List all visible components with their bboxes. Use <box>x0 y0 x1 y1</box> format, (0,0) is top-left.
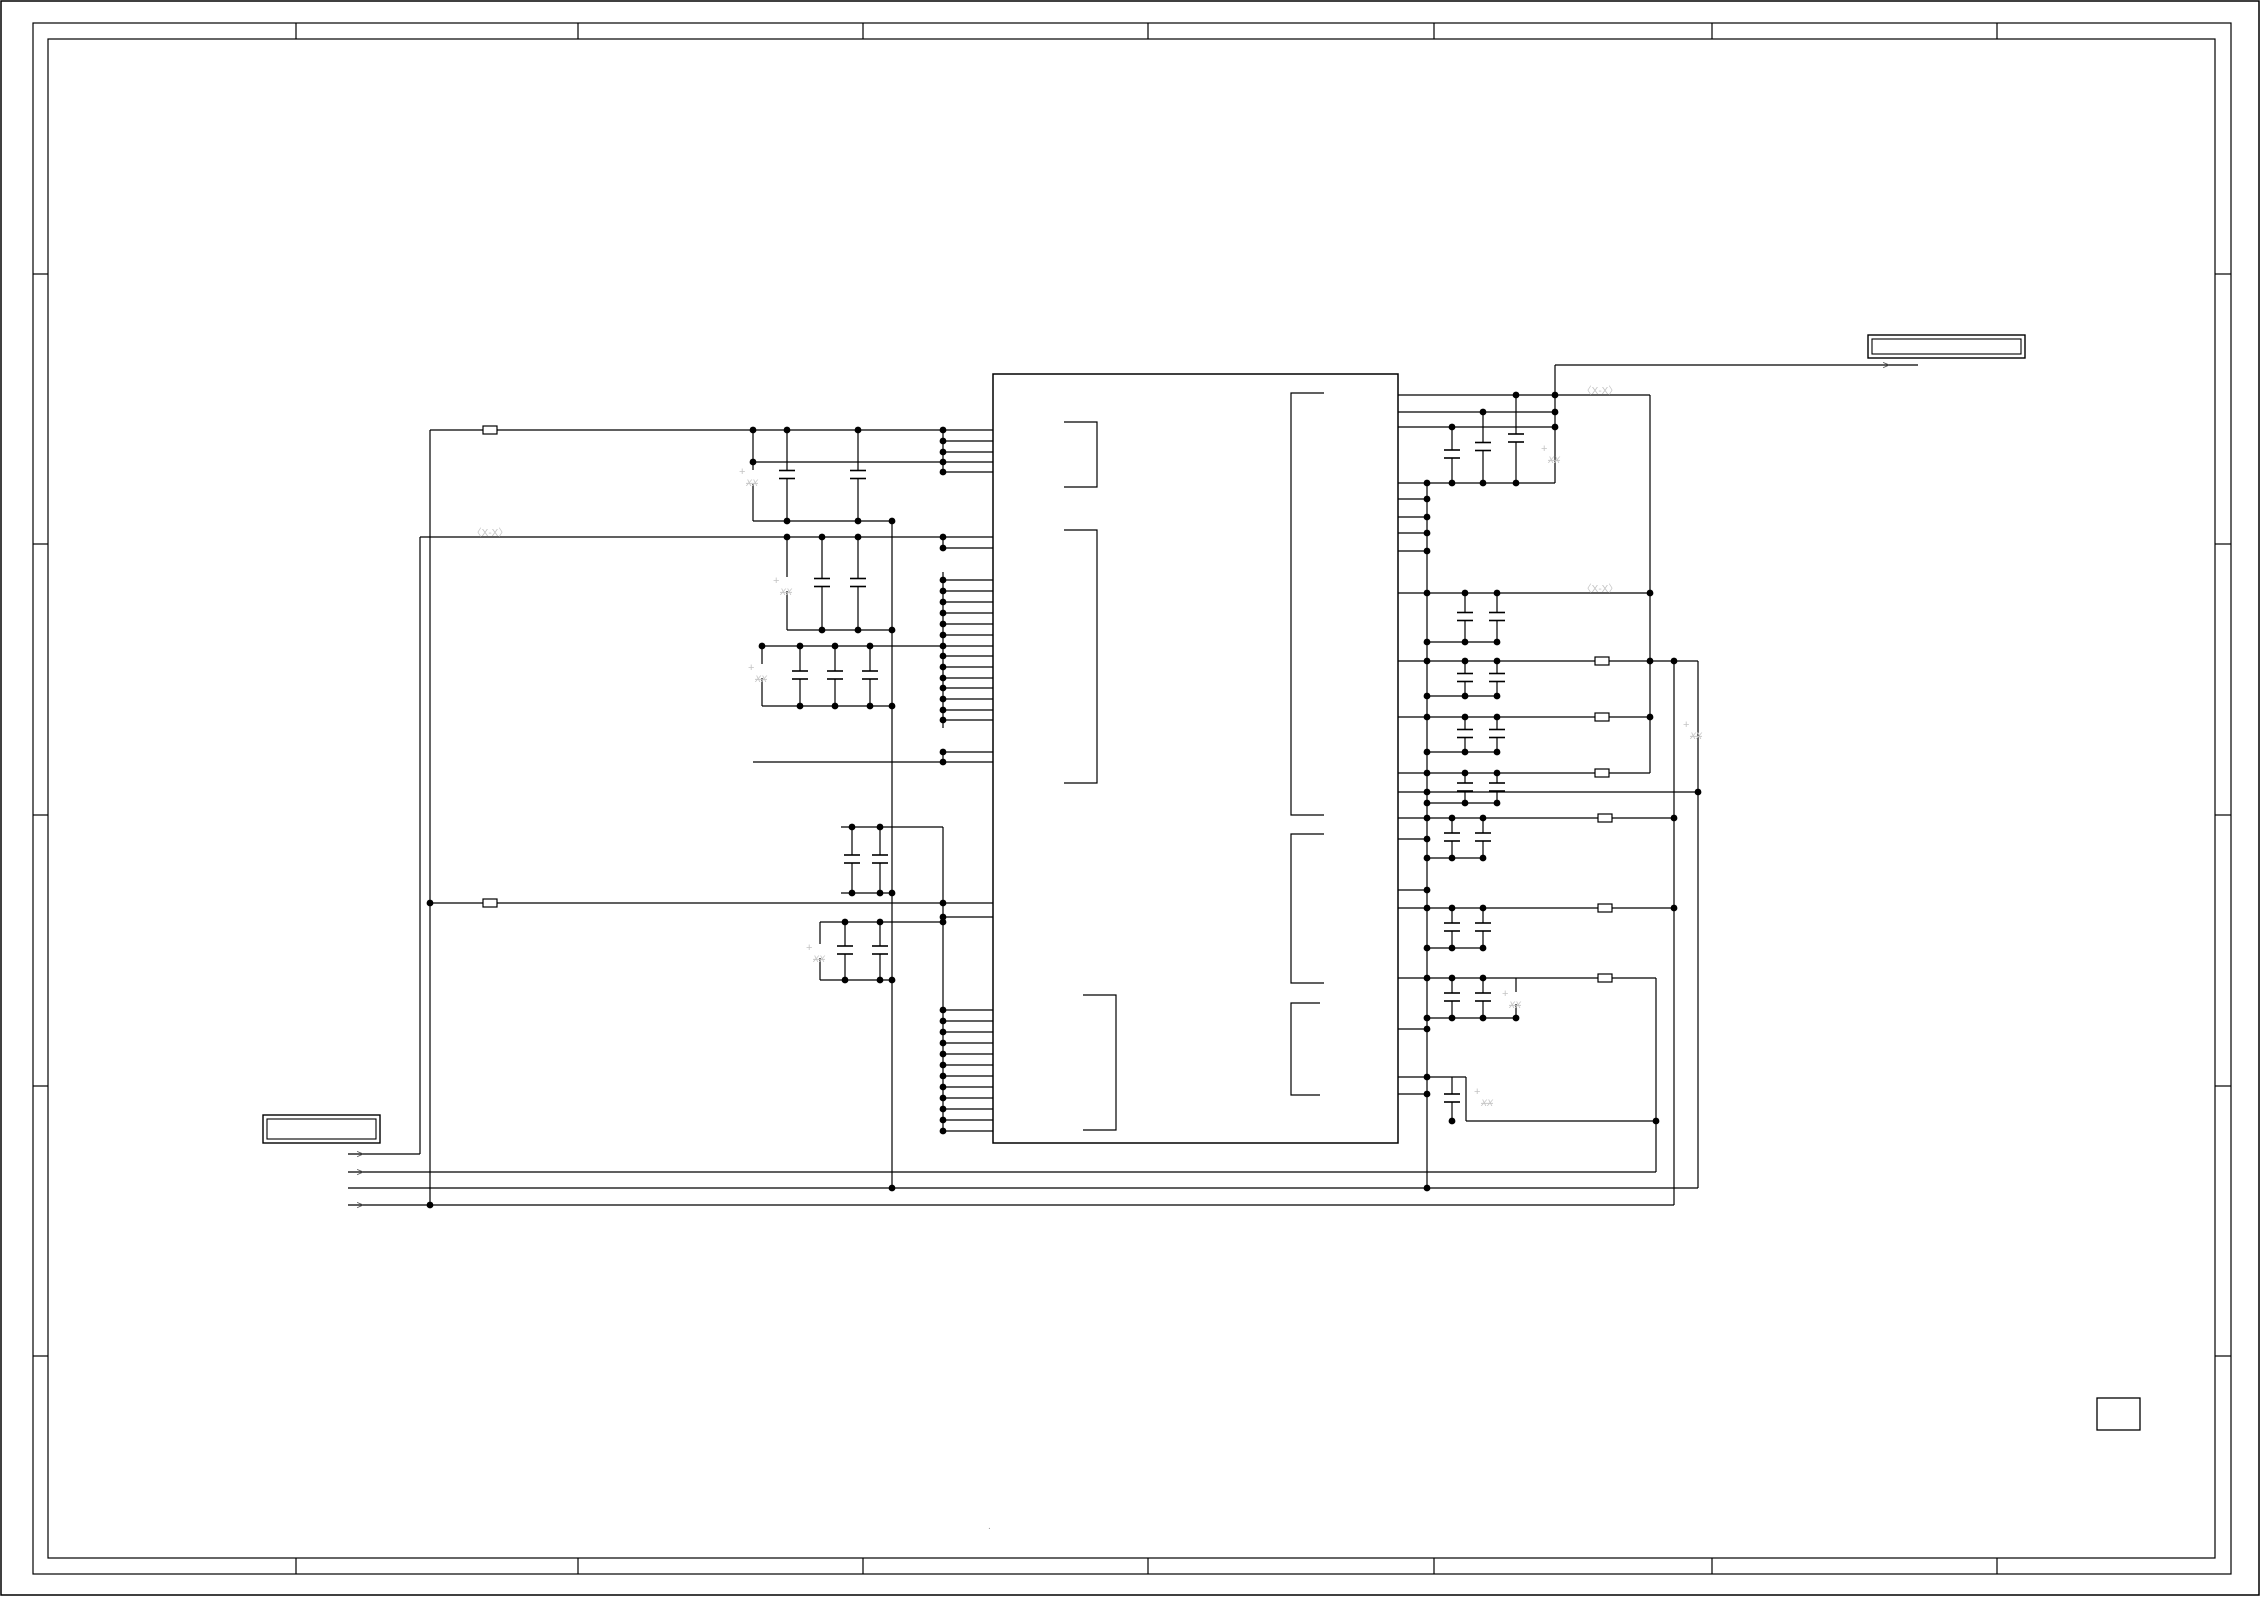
junction-dot <box>940 1018 947 1025</box>
junction-dot <box>1424 905 1431 912</box>
junction-dot <box>1671 905 1678 912</box>
junction-dot <box>889 518 896 525</box>
junction-dot <box>940 1073 947 1080</box>
junction-dot <box>877 824 884 831</box>
junction-dot <box>750 427 757 434</box>
junction-dot <box>1462 800 1469 807</box>
junction-dot <box>940 900 947 907</box>
junction-dot <box>1424 887 1431 894</box>
junction-dot <box>1424 530 1431 537</box>
ghost-cap-value: +XX <box>1683 719 1703 741</box>
schematic-sheet: +XX+XX+XX+XX+XX+XX+XX+XX〈X-X〉〈X-X〉〈X-X〉>… <box>0 0 2261 1597</box>
junction-dot <box>867 643 874 650</box>
junction-dot <box>819 534 826 541</box>
capacitor[interactable] <box>1444 427 1460 483</box>
junction-dot <box>1462 770 1469 777</box>
ic-pin-group-bracket <box>1064 530 1097 783</box>
ferrite-bead[interactable] <box>1595 657 1609 665</box>
ghost-cap-value: +XX <box>748 662 768 684</box>
ghost-net-label: 〈X-X〉 <box>1582 583 1619 595</box>
junction-dot <box>1480 975 1487 982</box>
wire-arrow-glyph: > <box>1882 358 1889 372</box>
ferrite-bead[interactable] <box>1598 974 1612 982</box>
wire-arrow-glyph: > <box>356 1198 363 1212</box>
junction-dot <box>1552 409 1559 416</box>
junction-dot <box>940 664 947 671</box>
junction-dot <box>889 627 896 634</box>
junction-dot <box>940 759 947 766</box>
junction-dot <box>1647 658 1654 665</box>
junction-dot <box>1695 789 1702 796</box>
junction-dot <box>1424 800 1431 807</box>
wire-arrow-glyph: > <box>356 1147 363 1161</box>
ghost-value-text: XX <box>779 587 793 597</box>
junction-dot <box>940 588 947 595</box>
capacitor[interactable] <box>792 646 808 706</box>
ferrite-bead[interactable] <box>1595 769 1609 777</box>
junction-dot <box>1494 714 1501 721</box>
junction-dot <box>427 1202 434 1209</box>
ic-symbol[interactable] <box>993 374 1398 1143</box>
junction-dot <box>940 1007 947 1014</box>
offpage-connector-layer[interactable] <box>263 335 2140 1430</box>
junction-dot <box>1494 693 1501 700</box>
ferrite-bead[interactable] <box>1595 713 1609 721</box>
junction-dot <box>832 703 839 710</box>
capacitor[interactable] <box>1475 908 1491 948</box>
junction-dot <box>849 824 856 831</box>
junction-dot <box>940 749 947 756</box>
junction-dot <box>1424 815 1431 822</box>
junction-dot <box>427 900 434 907</box>
junction-dot <box>1449 905 1456 912</box>
junction-dot <box>855 534 862 541</box>
junction-dot <box>1462 693 1469 700</box>
junction-dot <box>1449 855 1456 862</box>
page-border <box>1 1 2259 1595</box>
ghost-value-text: XX <box>745 478 759 488</box>
junction-dot <box>1480 815 1487 822</box>
junction-dot <box>784 534 791 541</box>
junction-dot <box>1424 658 1431 665</box>
junction-dot <box>1494 770 1501 777</box>
junction-dot <box>940 1062 947 1069</box>
junction-dot <box>940 459 947 466</box>
junction-dot <box>940 1106 947 1113</box>
junction-dot <box>855 427 862 434</box>
annotation-box[interactable] <box>2097 1398 2140 1430</box>
junction-dot <box>889 890 896 897</box>
capacitor[interactable] <box>1457 661 1473 696</box>
capacitor[interactable] <box>1475 412 1491 483</box>
junction-dot <box>940 427 947 434</box>
stray-mark: . <box>988 1521 991 1532</box>
capacitor[interactable] <box>779 430 795 521</box>
ic-pin-group-bracket <box>1291 1003 1320 1095</box>
capacitor[interactable] <box>827 646 843 706</box>
ic-pin-group-bracket <box>1291 834 1324 983</box>
ic-pin-group-bracket <box>1064 422 1097 487</box>
junction-dot <box>1449 815 1456 822</box>
junction-dot <box>855 518 862 525</box>
junction-dot <box>1462 639 1469 646</box>
junction-dot <box>940 1095 947 1102</box>
junction-dot <box>1424 1091 1431 1098</box>
junction-dot <box>1449 1118 1456 1125</box>
junction-dot <box>940 545 947 552</box>
junction-dot <box>784 427 791 434</box>
junction-dot <box>1494 639 1501 646</box>
junction-dot <box>940 469 947 476</box>
capacitor[interactable] <box>1489 717 1505 752</box>
junction-dot <box>1480 905 1487 912</box>
junction-dot <box>1552 392 1559 399</box>
junction-dot <box>877 977 884 984</box>
junction-dot <box>940 919 947 926</box>
wire-layer <box>348 365 1918 1205</box>
junction-dot <box>784 518 791 525</box>
ghost-cap-value: +XX <box>1474 1086 1494 1108</box>
junction-dot <box>750 459 757 466</box>
junction-dot <box>842 919 849 926</box>
junction-dot <box>940 534 947 541</box>
ghost-cap-value: +XX <box>739 466 759 488</box>
ghost-value-text: XX <box>1480 1098 1494 1108</box>
capacitor[interactable] <box>1475 978 1491 1018</box>
junction-dot <box>1424 1015 1431 1022</box>
junction-dot <box>1424 590 1431 597</box>
wire-arrow-glyph: > <box>356 1165 363 1179</box>
junction-dot <box>1424 855 1431 862</box>
polarity-plus-glyph: + <box>748 662 754 674</box>
offpage-connector-inner <box>1872 339 2021 354</box>
junction-dot <box>1424 1074 1431 1081</box>
junction-dot <box>1424 480 1431 487</box>
offpage-connector-left[interactable] <box>263 1115 380 1143</box>
capacitor[interactable] <box>850 537 866 630</box>
junction-dot <box>1513 1015 1520 1022</box>
junction-dot <box>940 599 947 606</box>
ghost-cap-value: +XX <box>773 575 793 597</box>
junction-dot <box>877 919 884 926</box>
junction-dot <box>877 890 884 897</box>
capacitor[interactable] <box>1457 593 1473 642</box>
junction-dot <box>1647 714 1654 721</box>
polarity-plus-glyph: + <box>1683 719 1689 731</box>
junction-dot <box>855 627 862 634</box>
ic-pin-group-bracket <box>1083 995 1116 1130</box>
junction-dot <box>832 643 839 650</box>
capacitor[interactable] <box>862 646 878 706</box>
capacitor[interactable] <box>837 922 853 980</box>
ghost-value-text: XX <box>1689 731 1703 741</box>
capacitor[interactable] <box>1444 908 1460 948</box>
capacitor[interactable] <box>1508 395 1524 483</box>
capacitor[interactable] <box>814 537 830 630</box>
junction-dot <box>1671 658 1678 665</box>
junction-dot <box>940 1128 947 1135</box>
schematic-canvas: +XX+XX+XX+XX+XX+XX+XX+XX〈X-X〉〈X-X〉〈X-X〉>… <box>0 0 2261 1597</box>
junction-dot <box>1462 590 1469 597</box>
junction-dot <box>1552 424 1559 431</box>
ghost-net-label: 〈X-X〉 <box>472 527 509 539</box>
ic-pin-group-bracket <box>1291 393 1324 815</box>
ghost-value-text: XX <box>812 954 826 964</box>
polarity-plus-glyph: + <box>739 466 745 478</box>
junction-dot <box>1449 424 1456 431</box>
capacitor[interactable] <box>1489 593 1505 642</box>
junction-dot <box>842 977 849 984</box>
polarity-plus-glyph: + <box>1474 1086 1480 1098</box>
capacitor[interactable] <box>872 922 888 980</box>
capacitor[interactable] <box>1444 978 1460 1018</box>
ferrite-bead[interactable] <box>1598 814 1612 822</box>
junction-dot <box>1424 1026 1431 1033</box>
junction-dot <box>1671 815 1678 822</box>
junction-dot <box>867 703 874 710</box>
junction-dot <box>797 703 804 710</box>
junction-dot <box>819 627 826 634</box>
capacitor[interactable] <box>1489 661 1505 696</box>
capacitor[interactable] <box>850 430 866 521</box>
junction-dot <box>889 1185 896 1192</box>
offpage-connector-inner <box>267 1119 376 1139</box>
junction-dot <box>940 653 947 660</box>
junction-dot <box>1480 409 1487 416</box>
junction-dot <box>849 890 856 897</box>
junction-dot <box>1462 658 1469 665</box>
ferrite-bead-layer[interactable] <box>483 426 1612 982</box>
ghost-cap-value: +XX <box>1541 443 1561 465</box>
junction-dot <box>759 643 766 650</box>
junction-dot <box>940 1040 947 1047</box>
capacitor[interactable] <box>1444 818 1460 858</box>
junction-dot <box>940 438 947 445</box>
junction-dot <box>1494 800 1501 807</box>
polarity-plus-glyph: + <box>1541 443 1547 455</box>
junction-dot <box>940 685 947 692</box>
offpage-connector-right[interactable] <box>1868 335 2025 358</box>
junction-dot <box>940 717 947 724</box>
junction-dot <box>889 703 896 710</box>
junction-dot <box>1424 514 1431 521</box>
ghost-text-layer: +XX+XX+XX+XX+XX+XX+XX+XX〈X-X〉〈X-X〉〈X-X〉>… <box>356 358 1889 1532</box>
capacitor[interactable] <box>1457 773 1473 803</box>
ghost-net-label: 〈X-X〉 <box>1582 385 1619 397</box>
junction-dot <box>940 577 947 584</box>
ferrite-bead[interactable] <box>1598 904 1612 912</box>
junction-dot <box>1653 1118 1660 1125</box>
junction-dot <box>1647 590 1654 597</box>
junction-dot <box>940 1029 947 1036</box>
ghost-value-text: XX <box>1547 455 1561 465</box>
junction-dot <box>1513 392 1520 399</box>
junction-dot <box>1424 749 1431 756</box>
junction-dot <box>1449 1015 1456 1022</box>
junction-dot <box>1449 975 1456 982</box>
junction-dot <box>940 1051 947 1058</box>
capacitor[interactable] <box>872 827 888 893</box>
ferrite-bead[interactable] <box>483 426 497 434</box>
junction-dot <box>940 675 947 682</box>
capacitor[interactable] <box>844 827 860 893</box>
junction-dot-layer <box>427 392 1702 1209</box>
ghost-value-text: XX <box>1508 1000 1522 1010</box>
junction-dot <box>797 643 804 650</box>
junction-dot <box>1513 480 1520 487</box>
junction-dot <box>940 632 947 639</box>
junction-dot <box>1424 639 1431 646</box>
junction-dot <box>1424 496 1431 503</box>
junction-dot <box>1424 836 1431 843</box>
junction-dot <box>1480 945 1487 952</box>
junction-dot <box>940 449 947 456</box>
junction-dot <box>940 1117 947 1124</box>
junction-dot <box>1424 714 1431 721</box>
capacitor-layer[interactable] <box>779 395 1524 1121</box>
ghost-value-text: XX <box>754 674 768 684</box>
junction-dot <box>1462 749 1469 756</box>
polarity-plus-glyph: + <box>773 575 779 587</box>
frame-outer-border <box>33 23 2231 1574</box>
junction-dot <box>1424 945 1431 952</box>
capacitor[interactable] <box>1475 818 1491 858</box>
junction-dot <box>1494 658 1501 665</box>
junction-dot <box>1424 548 1431 555</box>
junction-dot <box>940 621 947 628</box>
junction-dot <box>1480 1015 1487 1022</box>
junction-dot <box>940 1084 947 1091</box>
junction-dot <box>1449 945 1456 952</box>
polarity-plus-glyph: + <box>1502 988 1508 1000</box>
junction-dot <box>889 977 896 984</box>
junction-dot <box>940 643 947 650</box>
junction-dot <box>940 610 947 617</box>
junction-dot <box>940 696 947 703</box>
junction-dot <box>1424 789 1431 796</box>
junction-dot <box>1449 480 1456 487</box>
junction-dot <box>1494 749 1501 756</box>
ghost-cap-value: +XX <box>1502 988 1522 1010</box>
ic-body[interactable] <box>993 374 1398 1143</box>
junction-dot <box>1480 855 1487 862</box>
capacitor[interactable] <box>1457 717 1473 752</box>
ghost-cap-value: +XX <box>806 942 826 964</box>
junction-dot <box>1424 975 1431 982</box>
junction-dot <box>1424 1185 1431 1192</box>
junction-dot <box>1424 693 1431 700</box>
sheet-frame <box>1 1 2259 1595</box>
junction-dot <box>1494 590 1501 597</box>
junction-dot <box>1462 714 1469 721</box>
capacitor[interactable] <box>1444 1077 1460 1121</box>
frame-inner-border <box>48 39 2215 1558</box>
capacitor[interactable] <box>1489 773 1505 803</box>
junction-dot <box>1424 770 1431 777</box>
ferrite-bead[interactable] <box>483 899 497 907</box>
junction-dot <box>1480 480 1487 487</box>
polarity-plus-glyph: + <box>806 942 812 954</box>
junction-dot <box>940 707 947 714</box>
